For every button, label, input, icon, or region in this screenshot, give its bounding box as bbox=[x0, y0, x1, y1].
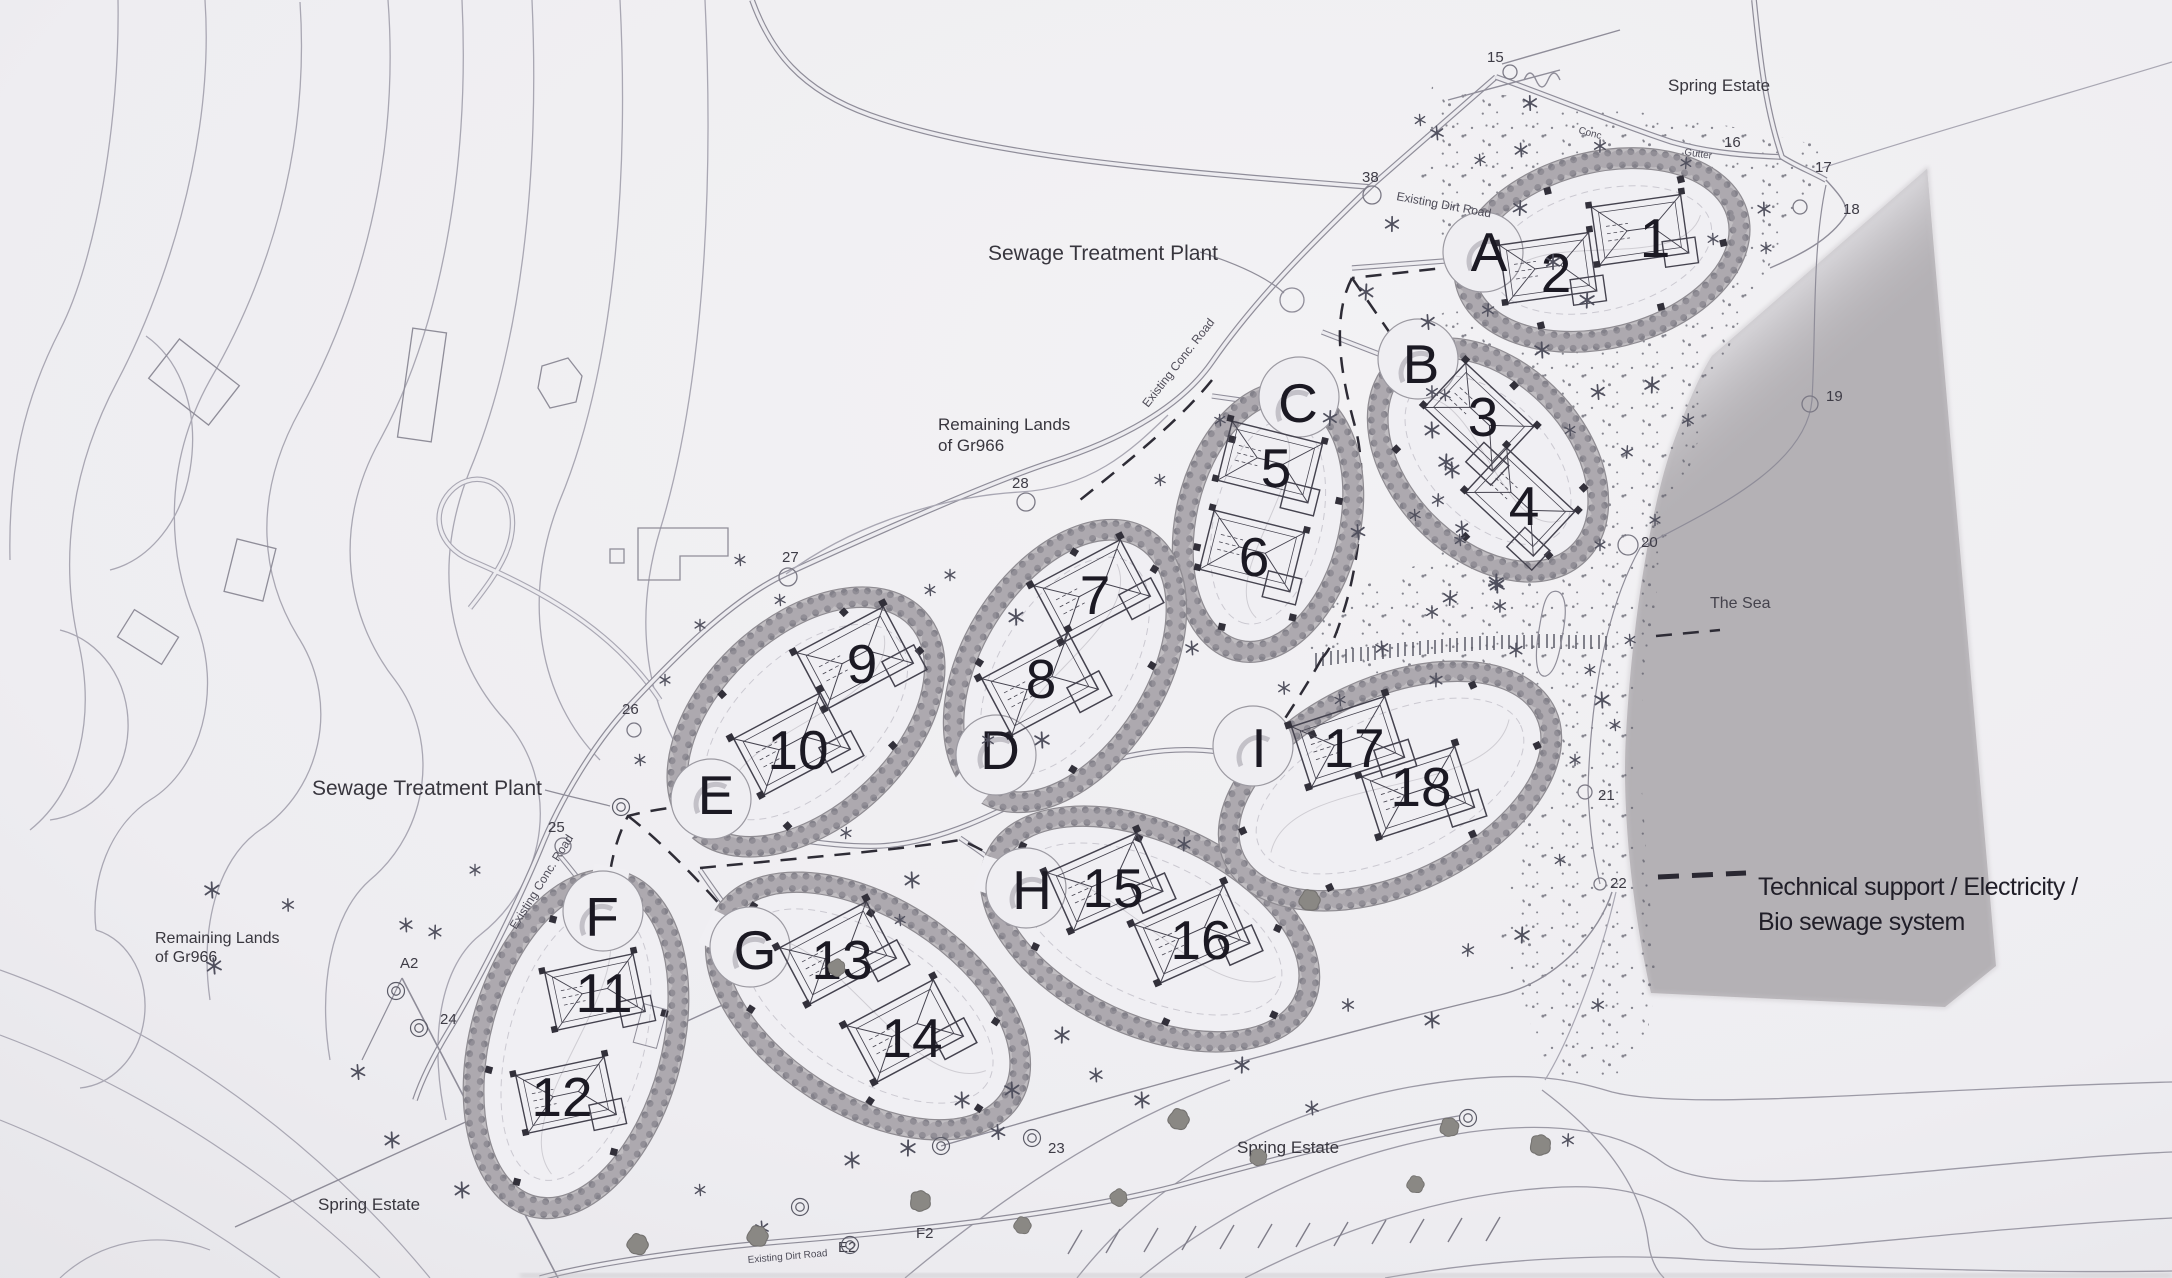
svg-text:16: 16 bbox=[1170, 909, 1231, 971]
svg-text:C: C bbox=[1278, 372, 1318, 434]
svg-text:19: 19 bbox=[1826, 388, 1843, 405]
svg-text:20: 20 bbox=[1641, 534, 1658, 551]
svg-text:A: A bbox=[1471, 221, 1508, 283]
svg-text:26: 26 bbox=[622, 701, 639, 718]
svg-text:I: I bbox=[1251, 717, 1266, 779]
svg-text:Sewage Treatment Plant: Sewage Treatment Plant bbox=[988, 242, 1218, 265]
svg-text:9: 9 bbox=[847, 633, 878, 695]
svg-text:15: 15 bbox=[1082, 857, 1143, 919]
svg-text:8: 8 bbox=[1026, 648, 1057, 710]
svg-text:F2: F2 bbox=[916, 1225, 934, 1242]
svg-text:G: G bbox=[734, 919, 777, 981]
svg-text:Remaining Lands: Remaining Lands bbox=[938, 415, 1070, 434]
svg-text:18: 18 bbox=[1390, 756, 1451, 818]
svg-text:Technical support / Electricit: Technical support / Electricity / bbox=[1758, 873, 2078, 901]
svg-text:E: E bbox=[698, 764, 735, 826]
svg-text:F: F bbox=[585, 886, 619, 948]
svg-text:25: 25 bbox=[548, 819, 565, 836]
svg-text:13: 13 bbox=[811, 929, 872, 991]
svg-text:B: B bbox=[1403, 333, 1440, 395]
svg-text:of Gr966: of Gr966 bbox=[938, 436, 1004, 455]
svg-text:23: 23 bbox=[1048, 1140, 1065, 1157]
svg-text:Sewage Treatment Plant: Sewage Treatment Plant bbox=[312, 777, 542, 800]
svg-text:21: 21 bbox=[1598, 787, 1615, 804]
svg-text:The Sea: The Sea bbox=[1710, 595, 1771, 612]
svg-text:18: 18 bbox=[1843, 201, 1860, 218]
svg-text:4: 4 bbox=[1509, 475, 1540, 537]
svg-text:22: 22 bbox=[1610, 875, 1627, 892]
svg-text:14: 14 bbox=[881, 1007, 942, 1069]
svg-text:3: 3 bbox=[1468, 386, 1499, 448]
svg-text:27: 27 bbox=[782, 549, 799, 566]
svg-text:6: 6 bbox=[1239, 526, 1270, 588]
svg-text:1: 1 bbox=[1640, 207, 1671, 269]
svg-text:28: 28 bbox=[1012, 475, 1029, 492]
svg-text:12: 12 bbox=[531, 1066, 592, 1128]
svg-text:24: 24 bbox=[440, 1011, 457, 1028]
svg-text:10: 10 bbox=[767, 719, 828, 781]
svg-text:17: 17 bbox=[1815, 159, 1832, 176]
svg-text:Spring Estate: Spring Estate bbox=[1668, 76, 1770, 95]
svg-text:7: 7 bbox=[1080, 564, 1111, 626]
svg-text:D: D bbox=[980, 719, 1020, 781]
svg-text:2: 2 bbox=[1541, 242, 1572, 304]
svg-text:Bio sewage system: Bio sewage system bbox=[1758, 908, 1965, 936]
svg-text:38: 38 bbox=[1362, 169, 1379, 186]
svg-text:H: H bbox=[1012, 859, 1052, 921]
svg-text:5: 5 bbox=[1261, 437, 1292, 499]
svg-text:16: 16 bbox=[1724, 134, 1741, 151]
svg-text:17: 17 bbox=[1323, 717, 1384, 779]
svg-text:11: 11 bbox=[575, 962, 632, 1024]
svg-text:Spring Estate: Spring Estate bbox=[318, 1195, 420, 1214]
svg-text:15: 15 bbox=[1487, 49, 1504, 66]
svg-text:A2: A2 bbox=[400, 955, 418, 972]
svg-text:Remaining Lands: Remaining Lands bbox=[155, 930, 280, 947]
